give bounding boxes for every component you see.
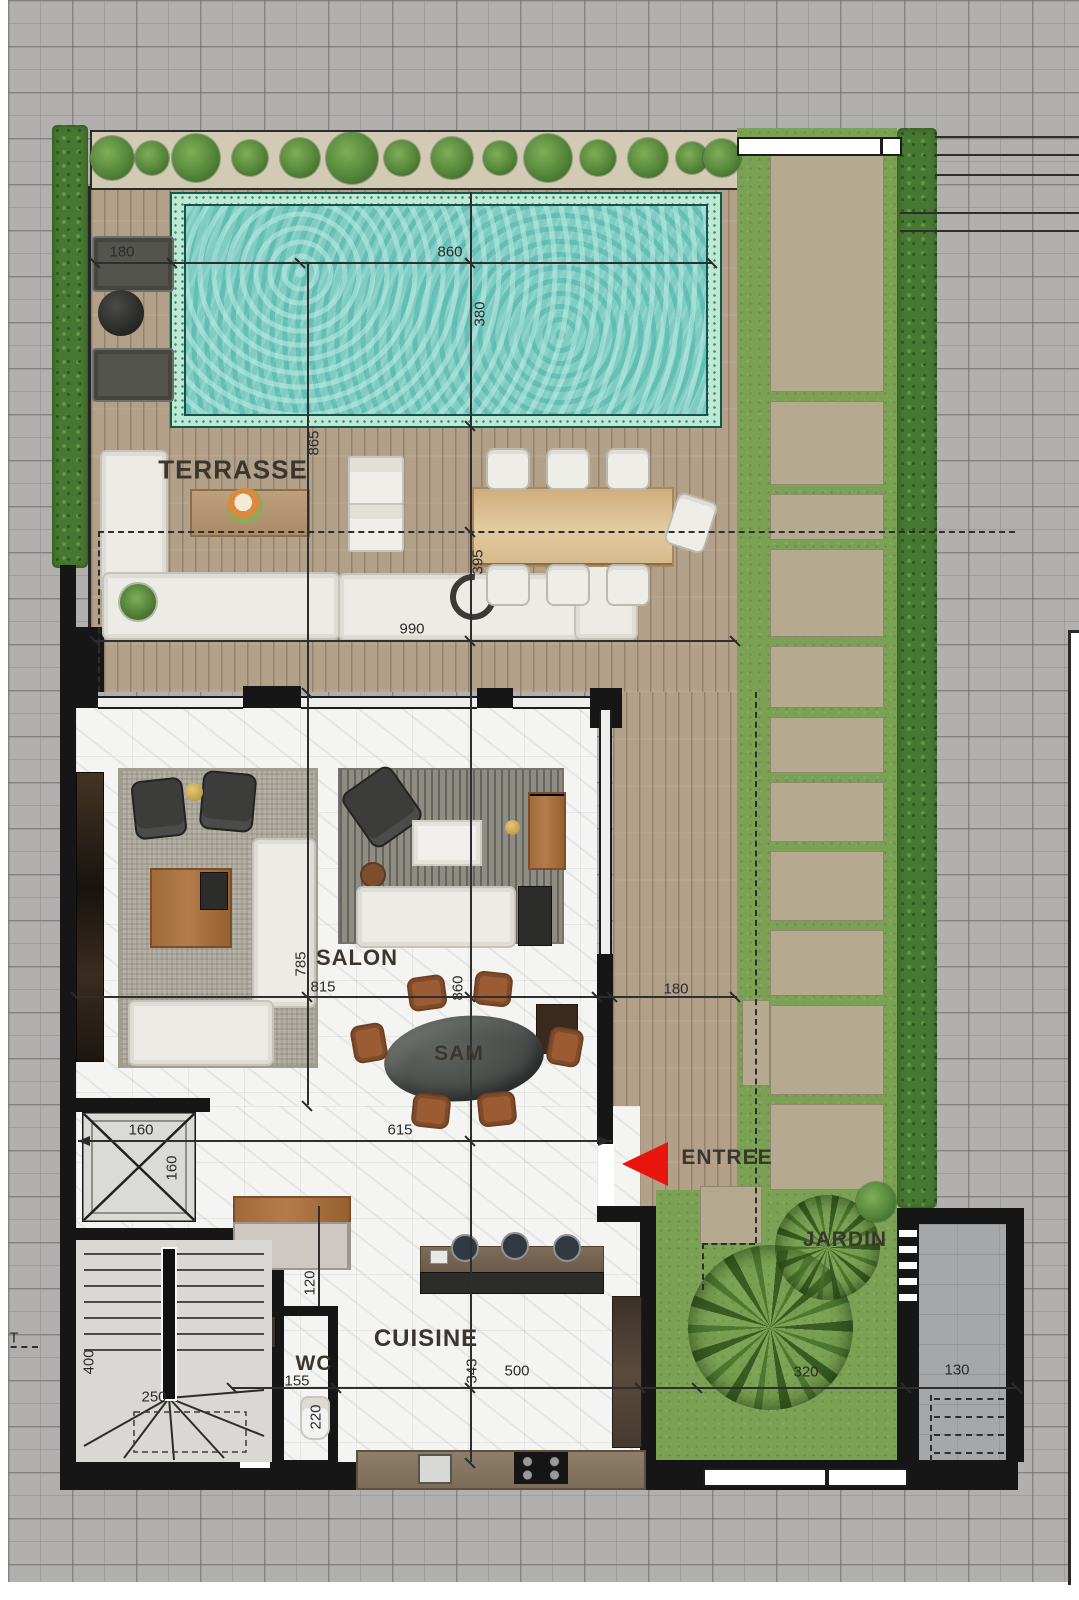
stepping-stone-9 (770, 1005, 884, 1095)
planter-bush-2 (172, 134, 220, 182)
utility-line-5 (900, 230, 1079, 232)
shelf-unit (528, 792, 566, 870)
lounger-2 (92, 348, 174, 402)
fence-gate-top-1 (737, 137, 882, 156)
dimension-label: 400 (81, 1349, 98, 1374)
entry-door-gap (598, 1144, 614, 1206)
dimension-label: 120 (302, 1270, 319, 1295)
garage-louver-2 (899, 1246, 917, 1253)
room-label-terrasse: TERRASSE (158, 455, 308, 486)
dim-line-615 (78, 1140, 612, 1142)
stepping-stone-8 (770, 930, 884, 996)
bar-stool-1 (451, 1234, 479, 1262)
dimension-label: 500 (504, 1363, 529, 1380)
sheet-margin-bottom (0, 1582, 1079, 1600)
stepping-stone-5 (770, 717, 884, 773)
tall-kitchen-unit (612, 1296, 642, 1448)
adjacent-sheet-edge (1068, 630, 1079, 1585)
sam-chair-3 (349, 1021, 389, 1064)
utility-line-2 (935, 154, 1079, 156)
room-label-sam: SAM (434, 1042, 484, 1066)
dim-line-chain-low (232, 1387, 1017, 1389)
garage-dash-1 (934, 1416, 1004, 1418)
garage-right-wall (1006, 1208, 1024, 1462)
utility-line-4 (900, 212, 1079, 214)
glazing-north-1 (98, 696, 243, 709)
planter-bush-4 (280, 138, 320, 178)
garage-dash-0 (934, 1398, 1004, 1400)
dimension-label: 220 (308, 1404, 325, 1429)
kitchen-sink (418, 1454, 452, 1484)
dimension-label: 130 (944, 1362, 969, 1379)
outdoor-chair-5 (546, 564, 590, 606)
north-mullion-2 (477, 688, 513, 708)
east-wall-mid (597, 954, 613, 1144)
dimension-label: 320 (793, 1364, 818, 1381)
planter-bush-11 (628, 138, 668, 178)
outdoor-chair-2 (546, 448, 590, 490)
outdoor-chair-3 (606, 448, 650, 490)
pouf (360, 862, 386, 888)
elevator-top-wall (70, 1098, 210, 1112)
hall-bench (233, 1196, 351, 1224)
planter-bush-3 (232, 140, 268, 176)
room-label-entree: ENTREE (681, 1146, 772, 1170)
sam-chair-1 (406, 974, 448, 1013)
planter-bush-7 (431, 137, 473, 179)
sun-lounger-2 (348, 503, 404, 552)
property-dash-jog-v (702, 1243, 704, 1290)
dimension-label: 395 (470, 549, 487, 574)
sam-chair-5 (410, 1092, 451, 1130)
garage-louver-5 (899, 1294, 917, 1301)
outdoor-chair-4 (486, 564, 530, 606)
dimension-label: T (9, 1330, 18, 1347)
sofa-salon-horizontal (128, 1000, 274, 1066)
planter-bush-10 (580, 140, 616, 176)
dimension-label: 180 (109, 244, 134, 261)
dimension-label: 865 (306, 430, 323, 455)
stepping-stone-7 (770, 851, 884, 921)
swimming-pool (184, 204, 708, 416)
wall-cabinet (76, 772, 104, 1062)
stove (514, 1452, 568, 1484)
sheet-margin-left (0, 0, 8, 1600)
armchair-1 (130, 776, 188, 840)
garden-gate-south-1 (703, 1468, 827, 1487)
ref-line-vertical (470, 192, 472, 1462)
garage-floor (915, 1224, 1006, 1462)
coffee-table-tray (200, 872, 228, 910)
outdoor-table (472, 487, 674, 567)
garage-dash-v (930, 1395, 932, 1461)
glazing-north-3 (513, 696, 590, 709)
dimension-label: 815 (310, 979, 335, 996)
planter-bush-5 (326, 132, 378, 184)
planter-bush-0 (90, 136, 134, 180)
overhang-dash-v (98, 531, 100, 692)
garage-louver-3 (899, 1262, 917, 1269)
stairs-right-wall (270, 1240, 284, 1462)
planter-bush-13 (703, 139, 741, 177)
dimension-label: 160 (128, 1122, 153, 1139)
glazing-north-2 (301, 696, 477, 709)
island-base (420, 1272, 604, 1294)
dim-line-pool (95, 262, 712, 264)
stepping-stone-0 (770, 150, 884, 392)
staircase (76, 1240, 272, 1462)
stepping-stone-6 (770, 782, 884, 842)
planter-bush-1 (135, 141, 169, 175)
armchair-2 (199, 770, 258, 833)
garage-dash-2 (934, 1434, 1004, 1436)
sam-chair-2 (472, 970, 513, 1008)
dim-line-815 (76, 996, 737, 998)
outdoor-chair-6 (606, 564, 650, 606)
garden-bush-corner (856, 1182, 896, 1222)
garden-west-wall (640, 1206, 656, 1462)
sun-lounger-1 (348, 456, 404, 505)
sam-chair-6 (476, 1090, 517, 1128)
room-label-cuisine: CUISINE (374, 1325, 478, 1353)
garage-top-wall (897, 1208, 1024, 1224)
glazing-east (599, 710, 612, 954)
lamp-gold (505, 820, 520, 835)
stepping-stone-10 (770, 1104, 884, 1190)
dim-arrow-right (598, 1136, 610, 1146)
outdoor-chair-1 (486, 448, 530, 490)
dimension-label: 860 (450, 975, 467, 1000)
entry-arrow-icon (622, 1142, 668, 1186)
plant-terrace (120, 584, 156, 620)
floor-plan-sheet: TERRASSESALONSAMCUISINEWCENTREEJARDIN180… (0, 0, 1079, 1600)
north-mullion-1 (243, 686, 301, 708)
dimension-label: 860 (437, 244, 462, 261)
planter-bush-6 (384, 140, 420, 176)
utility-line-1 (935, 136, 1079, 138)
stepping-stone-1 (770, 401, 884, 485)
hedge-right (897, 128, 937, 1208)
fence-gate-top-2 (881, 137, 902, 156)
bar-stool-2 (501, 1232, 529, 1260)
flower-decor (227, 488, 263, 524)
dim-line-785v (307, 262, 309, 1105)
planter-bush-8 (483, 141, 517, 175)
north-post-left (76, 688, 98, 708)
dimension-label: 615 (387, 1122, 412, 1139)
stepping-stone-4 (770, 646, 884, 708)
property-dash-jog-h (702, 1243, 755, 1245)
stepping-stone-2 (770, 494, 884, 540)
stepping-stone-3 (770, 549, 884, 637)
dimension-label: 785 (293, 951, 310, 976)
garage-louver-1 (899, 1230, 917, 1237)
tv-console (518, 886, 552, 946)
dimension-label: 250 (141, 1389, 166, 1406)
garage-louver-4 (899, 1278, 917, 1285)
dimension-label: 990 (399, 621, 424, 638)
dimension-label: 343 (464, 1358, 481, 1383)
dim-line-990 (95, 640, 737, 642)
sam-chair-4 (545, 1025, 585, 1068)
sofa-tv (356, 886, 516, 948)
side-table-round (98, 290, 144, 336)
room-label-salon: SALON (316, 945, 398, 971)
dimension-label: 155 (284, 1373, 309, 1390)
dim-arrow-left (78, 1136, 90, 1146)
hedge-left (52, 125, 88, 568)
overhang-dash-h (98, 531, 1015, 533)
bar-stool-3 (553, 1234, 581, 1262)
island-sink (430, 1250, 448, 1264)
dimension-label: 160 (164, 1155, 181, 1180)
west-wall (60, 565, 76, 1490)
utility-line-3 (935, 174, 1079, 176)
room-label-jardin: JARDIN (803, 1228, 887, 1252)
dimension-label: 380 (472, 301, 489, 326)
kitchen-counter (356, 1450, 646, 1490)
garden-top-stone (700, 1186, 762, 1244)
garden-gate-south-2 (827, 1468, 908, 1487)
planter-bush-9 (524, 134, 572, 182)
gold-side-table (185, 783, 203, 801)
garage-dash-3 (934, 1452, 1004, 1454)
dimension-label: 180 (663, 981, 688, 998)
